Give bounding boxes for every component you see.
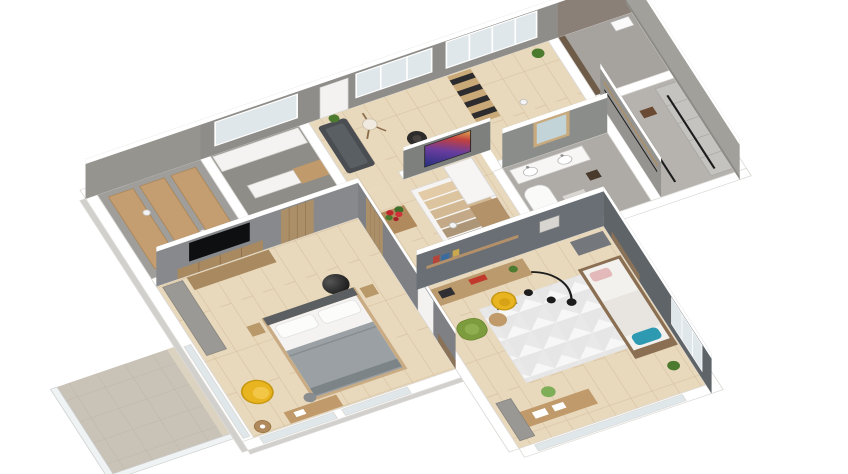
floorplan-stage <box>0 0 848 474</box>
floorplan-3d-view <box>0 0 848 474</box>
